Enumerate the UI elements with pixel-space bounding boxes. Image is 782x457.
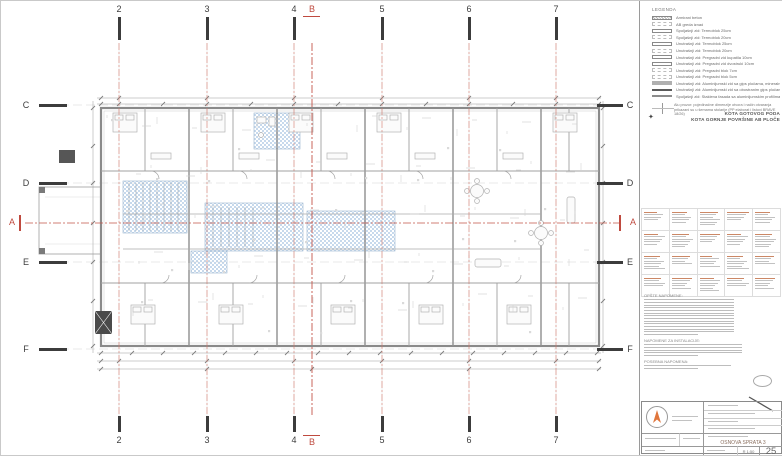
legend: LEGENDA Armirani betonAB greda iznadSpol… (652, 7, 780, 117)
apartment-table-cell (697, 231, 725, 253)
grid-column-label-bottom: 2 (112, 435, 126, 445)
floor-plan-drawing (1, 1, 639, 457)
apartment-table-cell (753, 209, 781, 231)
section-a-tick (19, 215, 21, 231)
legend-item-label: Unutrašnji zid: Pregradni blok 5cm (676, 74, 737, 79)
apartment-table-cell (697, 209, 725, 231)
grid-tick (381, 17, 384, 40)
grid-tick (39, 182, 67, 185)
section-a-tick (619, 215, 621, 231)
apartment-table-cell (669, 253, 697, 275)
section-b-label-top: B (305, 4, 319, 14)
notes-heading: POSEBNA NAPOMENA: (644, 359, 778, 364)
apartment-table-cell (753, 231, 781, 253)
decor (708, 421, 738, 422)
grid-column-label-bottom: 4 (287, 435, 301, 445)
legend-item-label: Spoljašnji zid: Staklena fasada sa alumi… (676, 94, 780, 99)
decor (708, 405, 738, 406)
grid-tick (468, 17, 471, 40)
legend-swatch-outline (652, 29, 672, 33)
grid-row-label-right: E (623, 257, 637, 267)
detail-sketch-ellipse (753, 375, 772, 387)
notes-section: OPŠTE NAPOMENE:NAPOMENE ZA INSTALACIJE:P… (644, 290, 778, 371)
legend-title: LEGENDA (652, 7, 780, 12)
legend-item-label: Unutrašnji zid: Pregradni blok 7cm (676, 68, 737, 73)
legend-swatch-darkfill (652, 89, 672, 92)
legend-item-label: AB greda iznad (676, 22, 703, 27)
grid-tick (293, 416, 296, 432)
grid-row-label-left: C (19, 100, 33, 110)
grid-row-label-right: F (623, 344, 637, 354)
apartment-table-cell (725, 209, 753, 231)
apartment-table-cell (753, 253, 781, 275)
legend-item: Spoljašnji zid: Staklena fasada sa alumi… (652, 93, 780, 100)
grid-tick (468, 416, 471, 432)
kota-line2: KOTA GORNJE POVRŠINE AB PLOČE (691, 117, 780, 123)
apartment-table-cell (642, 231, 670, 253)
grid-tick (118, 416, 121, 432)
apartment-table-cell (642, 253, 670, 275)
window-dim-icon (652, 103, 674, 114)
legend-swatch-outline (652, 62, 672, 66)
section-b-label-bottom: B (305, 437, 319, 447)
grid-row-label-right: C (623, 100, 637, 110)
grid-column-label-top: 3 (200, 4, 214, 14)
legend-item-label: Unutrašnji zid: Pregradni zid dvostruki … (676, 61, 754, 66)
level-mark-icon: ✦ (648, 113, 654, 121)
grid-tick (293, 17, 296, 40)
legend-swatch-concrete (652, 16, 672, 20)
shaft-top-left (59, 150, 75, 163)
apartment-table-cell (642, 209, 670, 231)
grid-tick (39, 104, 67, 107)
grid-tick (597, 261, 623, 264)
company-logo (646, 406, 668, 428)
decor (708, 413, 755, 414)
apartment-table-cell (669, 231, 697, 253)
grid-tick (118, 17, 121, 40)
legend-swatch-midfill (652, 95, 672, 97)
grid-column-label-top: 7 (549, 4, 563, 14)
legend-item-label: Armirani beton (676, 15, 702, 20)
info-panel: LEGENDA Armirani betonAB greda iznadSpol… (639, 1, 782, 455)
title-block: OSNOVA SPRATA 3 R 1:50 25 (641, 401, 782, 454)
grid-tick (597, 104, 623, 107)
grid-column-label-top: 5 (375, 4, 389, 14)
grid-column-label-bottom: 6 (462, 435, 476, 445)
grid-tick (39, 348, 67, 351)
grid-column-label-top: 4 (287, 4, 301, 14)
drawing-scale: R 1:50 (738, 447, 759, 456)
apartment-table-cell (697, 253, 725, 275)
apartment-table-cell (725, 253, 753, 275)
grid-tick (39, 261, 67, 264)
grid-row-label-left: D (19, 178, 33, 188)
section-a-label-right: A (626, 217, 640, 227)
apartment-table-cell (725, 231, 753, 253)
legend-item-label: Unutrašnji zid: Termoblok 20cm (676, 48, 732, 53)
legend-swatch-dash (652, 35, 672, 39)
decor (708, 428, 755, 429)
grid-column-label-bottom: 7 (549, 435, 563, 445)
legend-item-label: Unutrašnji zid: Aluminijumski zid sa obo… (676, 87, 780, 92)
grid-tick (206, 416, 209, 432)
grid-row-label-left: E (19, 257, 33, 267)
legend-swatch-outline (652, 42, 672, 46)
titleblock-row (704, 425, 782, 433)
notes-heading: NAPOMENE ZA INSTALACIJE: (644, 338, 778, 343)
grid-column-label-bottom: 3 (200, 435, 214, 445)
legend-swatch-grayfill (652, 81, 672, 85)
section-b-underline (303, 16, 320, 17)
grid-row-label-left: F (19, 344, 33, 354)
legend-item-label: Unutrašnji zid: Pregradni zid kupatila 1… (676, 55, 752, 60)
grid-column-label-bottom: 5 (375, 435, 389, 445)
grid-tick (381, 416, 384, 432)
legend-item-label: Spoljašnji zid: Termoblok 20cm (676, 35, 731, 40)
terrace-left (39, 187, 101, 254)
grid-column-label-top: 2 (112, 4, 126, 14)
grid-row-label-right: D (623, 178, 637, 188)
grid-tick (206, 17, 209, 40)
section-b-overline (303, 435, 320, 436)
apartment-table-cell (669, 209, 697, 231)
drawing-sheet: 223344556677CCDDEEFFAABB LEGENDA Armiran… (0, 0, 782, 456)
grid-column-label-top: 6 (462, 4, 476, 14)
legend-swatch-dash (652, 49, 672, 53)
apartment-table (641, 208, 781, 297)
legend-item-label: Unutrašnji zid: Termoblok 25cm (676, 41, 732, 46)
legend-swatch-outline (652, 55, 672, 59)
section-a-label-left: A (5, 217, 19, 227)
grid-tick (555, 17, 558, 40)
legend-swatch-dash (652, 75, 672, 79)
legend-item-label: Spoljašnji zid: Termoblok 25cm (676, 28, 731, 33)
notes-heading: OPŠTE NAPOMENE: (644, 293, 778, 298)
kota-labels: KOTA GOTOVOG PODA KOTA GORNJE POVRŠINE A… (691, 111, 780, 123)
legend-swatch-dash (652, 68, 672, 72)
logo-arrow-icon (653, 410, 661, 423)
grid-tick (597, 348, 623, 351)
grid-tick (555, 416, 558, 432)
grid-tick (597, 182, 623, 185)
legend-item-label: Unutrašnji zid: Aluminijumski zid sa gip… (676, 81, 780, 86)
legend-swatch-dash (652, 22, 672, 26)
